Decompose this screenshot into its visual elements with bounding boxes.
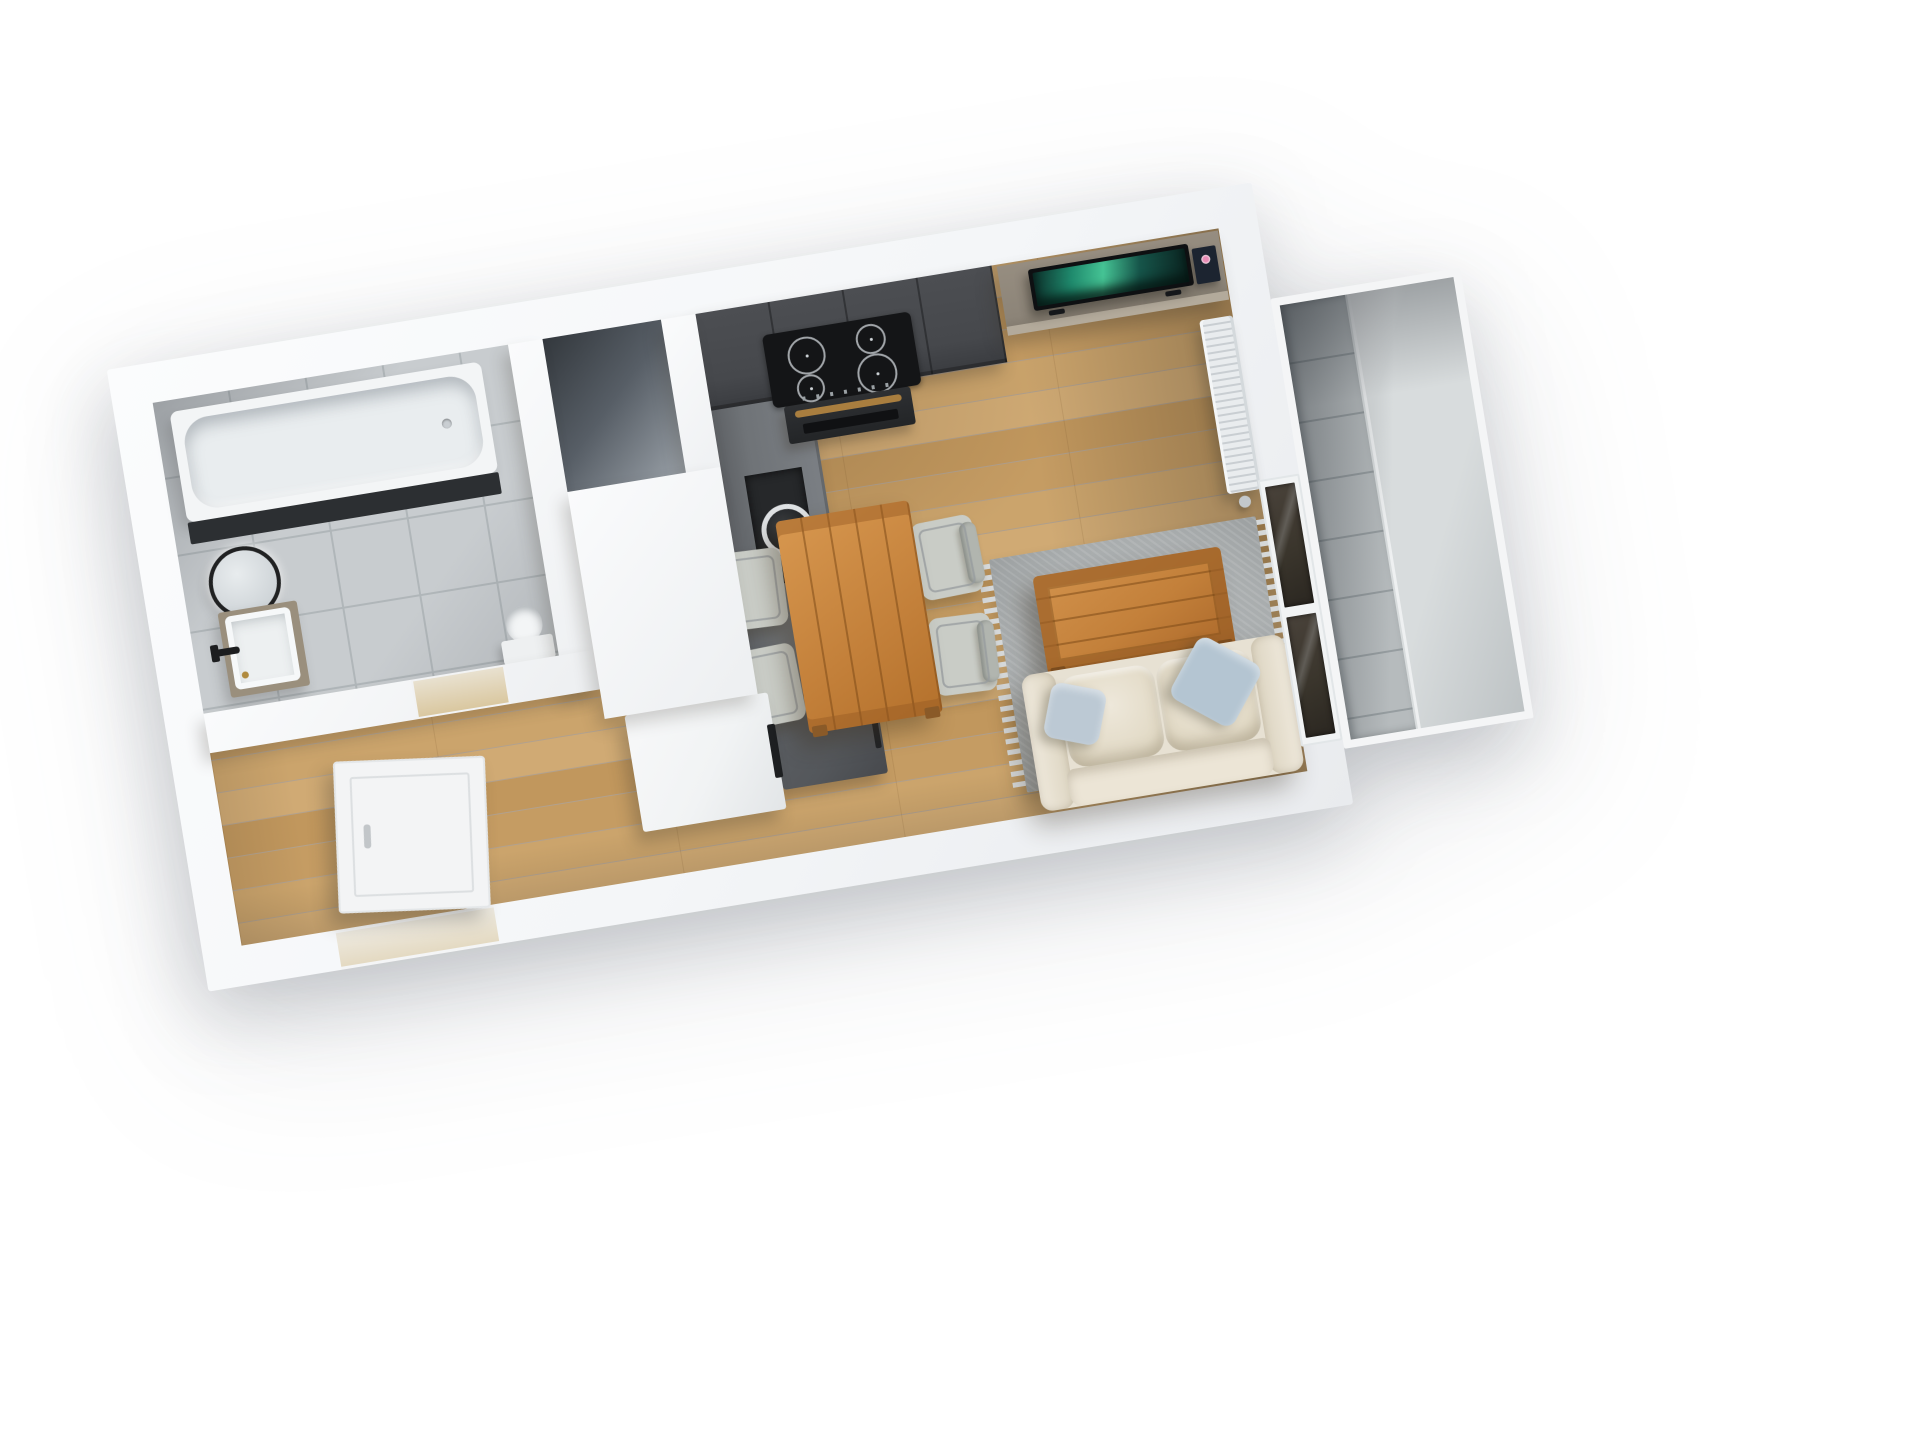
burner-icon: [785, 334, 829, 378]
toilet: [496, 602, 556, 666]
throw-pillow: [1042, 681, 1107, 746]
apartment-plan: [107, 182, 1354, 991]
floor-plan-scene: [0, 0, 1920, 1440]
burner-icon: [854, 322, 888, 356]
vanity-sink: [217, 600, 310, 698]
white-counter-block: [624, 692, 786, 832]
entrance-door: [333, 756, 491, 914]
